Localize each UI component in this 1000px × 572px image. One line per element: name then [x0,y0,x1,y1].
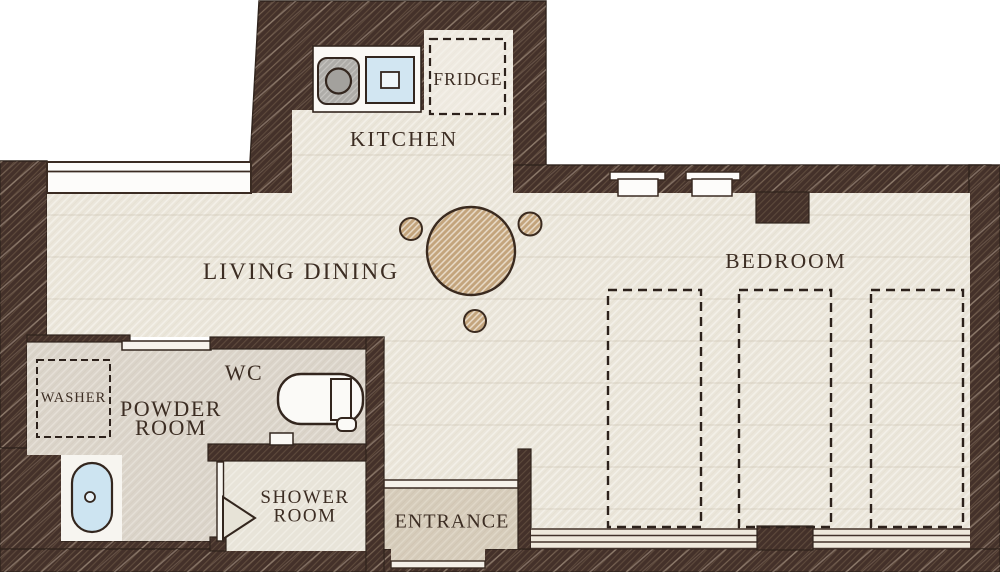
svg-text:ROOM: ROOM [273,506,336,527]
svg-text:ROOM: ROOM [135,415,207,440]
svg-text:FRIDGE: FRIDGE [433,69,502,89]
svg-text:KITCHEN: KITCHEN [350,127,458,151]
svg-text:WC: WC [225,360,263,385]
svg-text:WASHER: WASHER [41,390,107,406]
svg-text:BEDROOM: BEDROOM [725,249,847,273]
svg-text:LIVING DINING: LIVING DINING [203,259,399,285]
svg-text:ENTRANCE: ENTRANCE [395,511,510,533]
